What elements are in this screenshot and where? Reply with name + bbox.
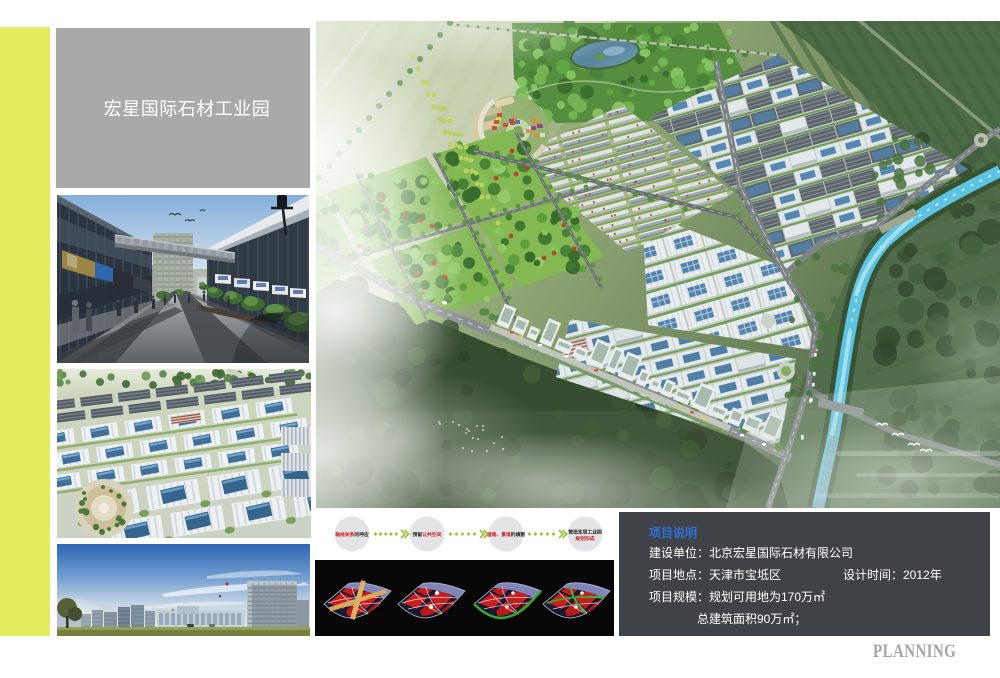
svg-text:轴线关系的呼应: 轴线关系的呼应 <box>335 531 369 538</box>
svg-text:规划形成: 规划形成 <box>575 535 594 542</box>
svg-text:营造宜居工业园: 营造宜居工业园 <box>568 529 602 536</box>
svg-text:预留公共空间: 预留公共空间 <box>413 531 442 538</box>
svg-text:道路、景墙的横割: 道路、景墙的横割 <box>487 531 526 538</box>
